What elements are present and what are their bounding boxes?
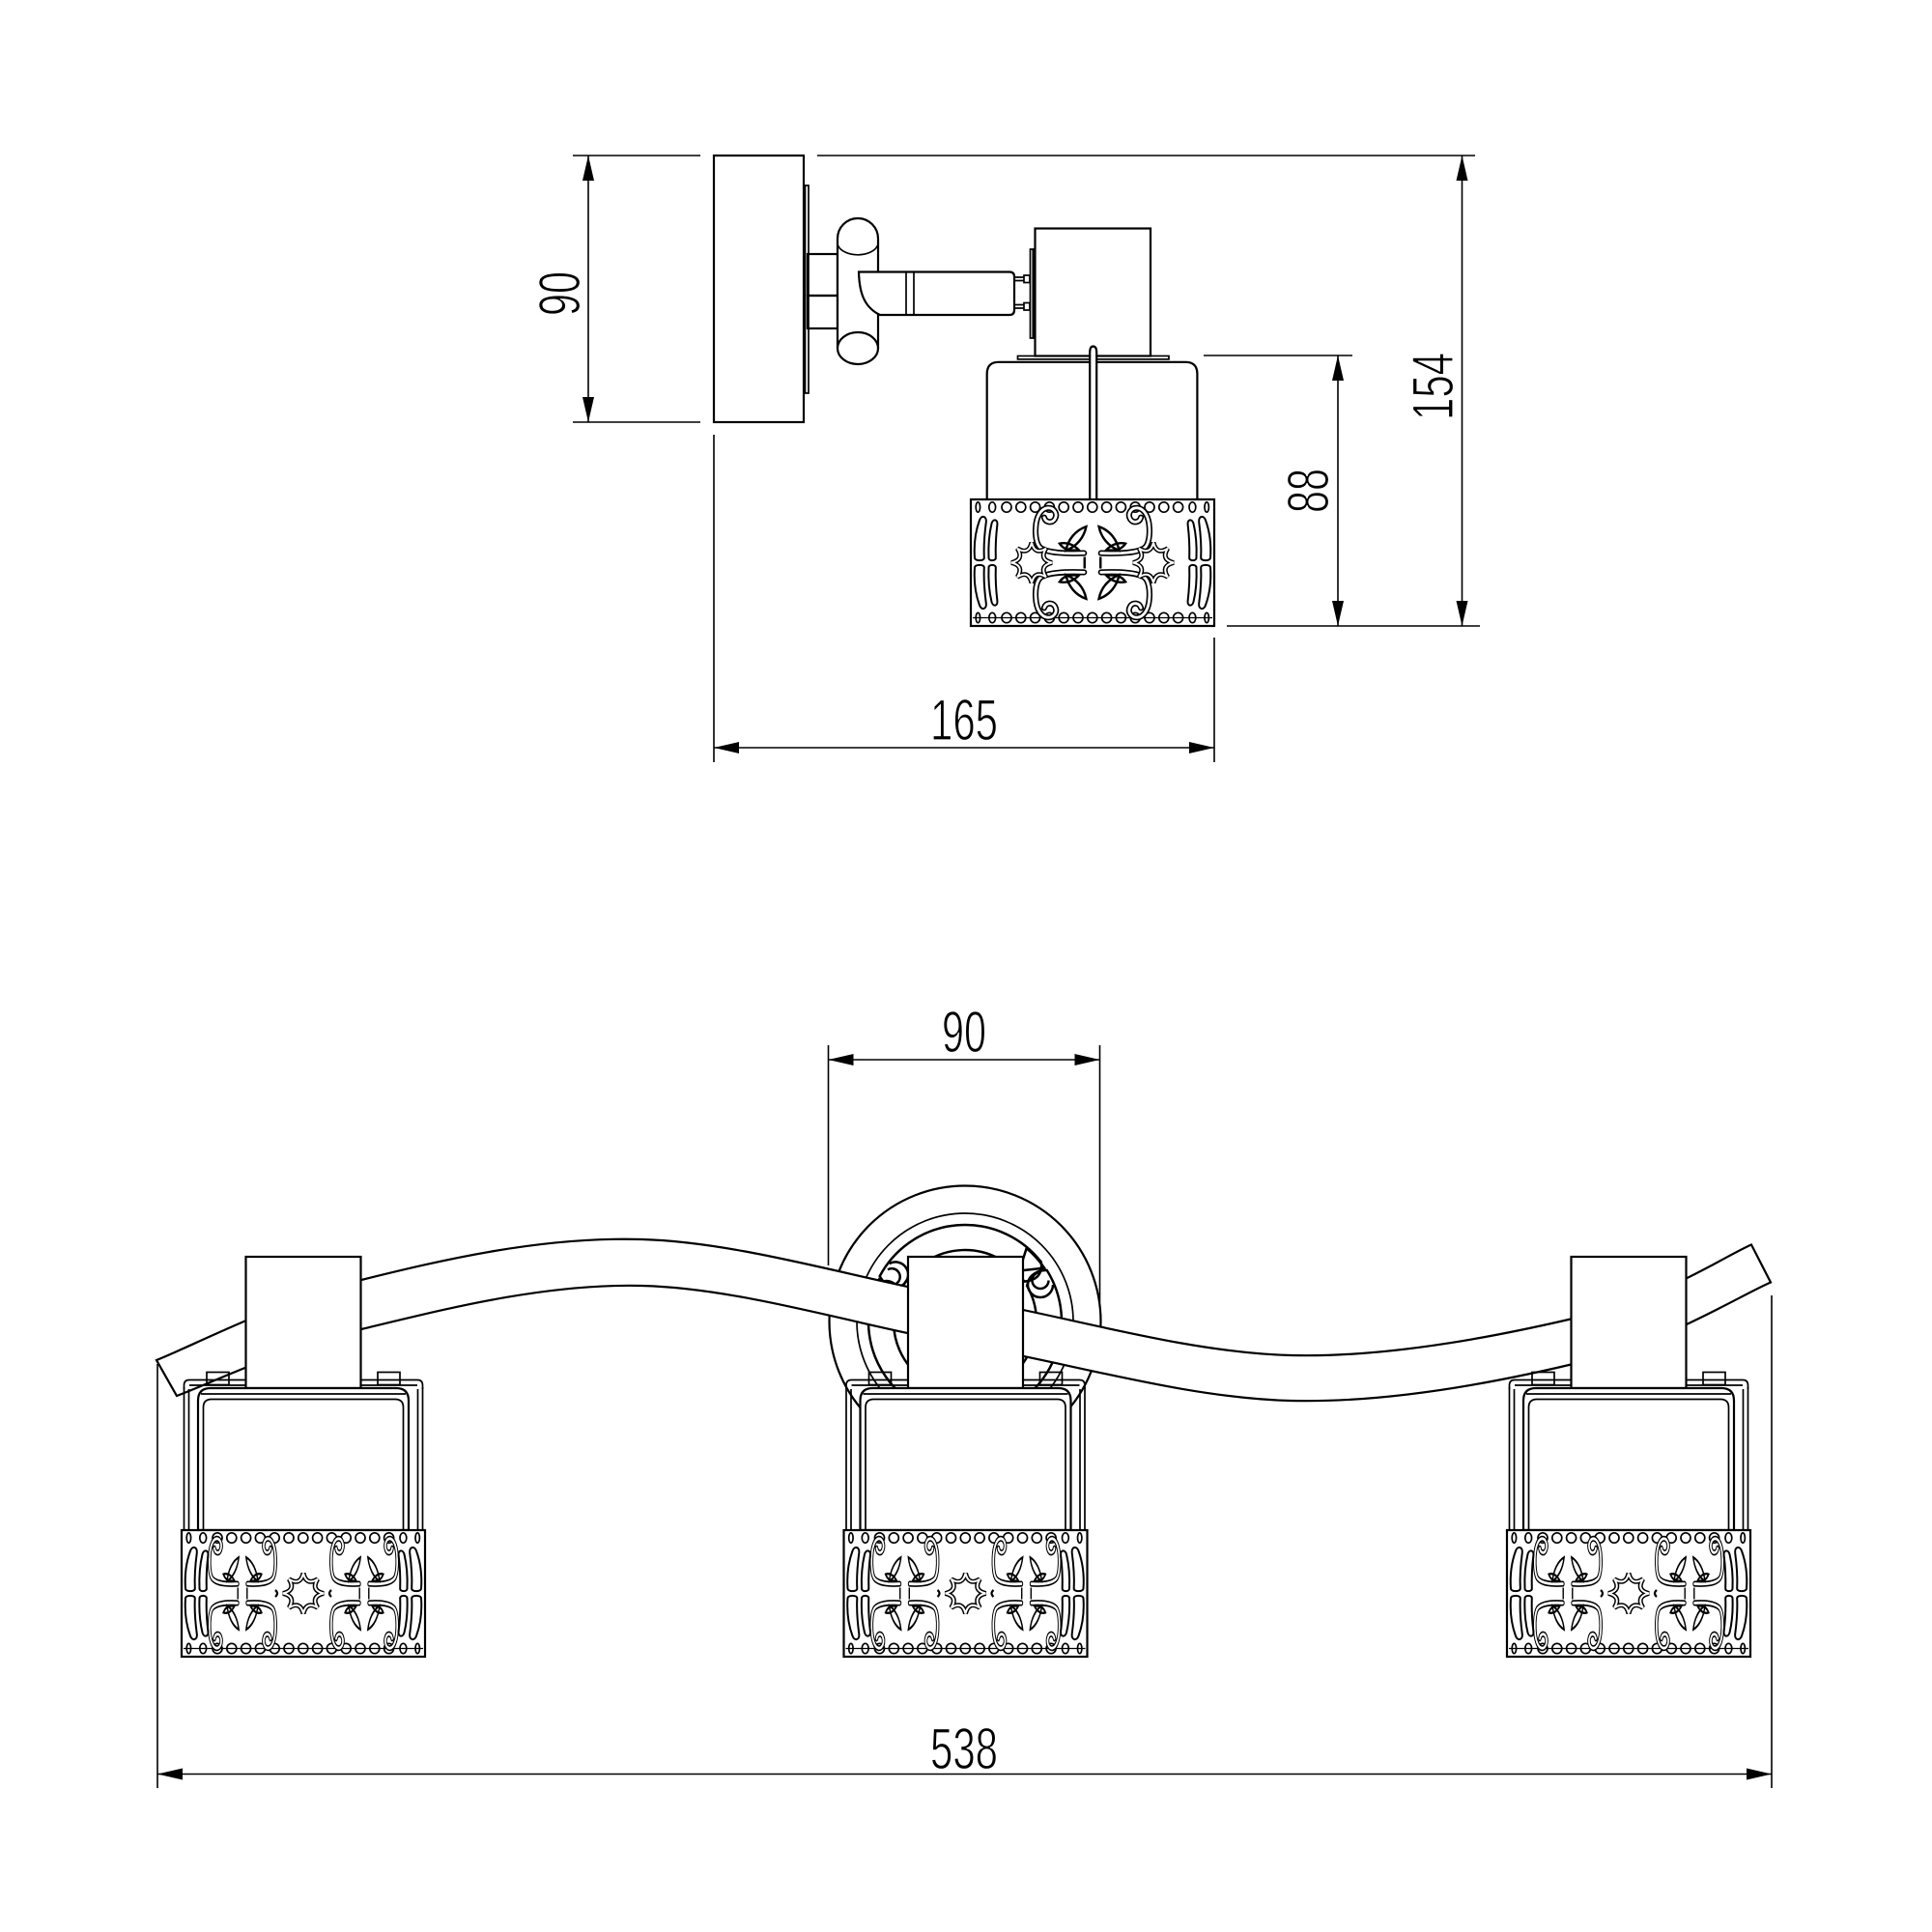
svg-text:88: 88 — [1276, 469, 1341, 513]
svg-text:90: 90 — [527, 271, 592, 316]
svg-text:90: 90 — [942, 1000, 986, 1065]
svg-text:538: 538 — [930, 1717, 998, 1781]
svg-text:154: 154 — [1401, 353, 1465, 420]
svg-text:165: 165 — [930, 688, 998, 753]
